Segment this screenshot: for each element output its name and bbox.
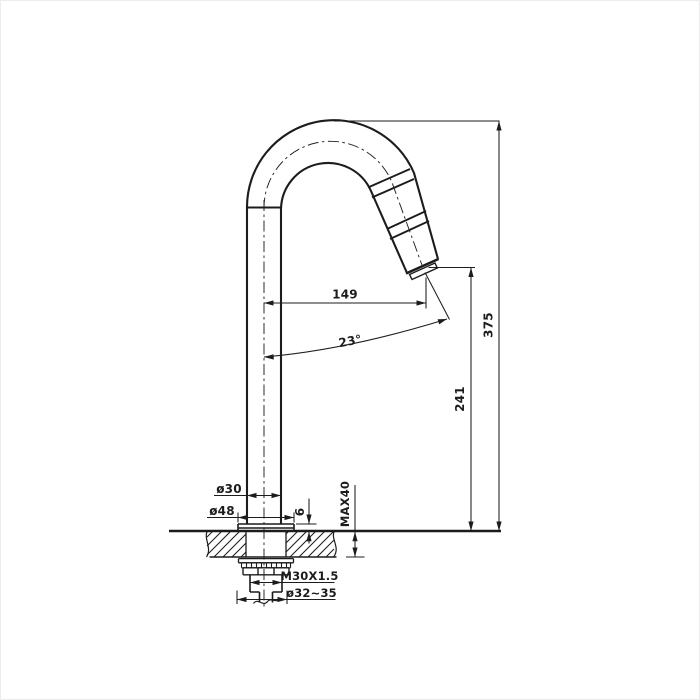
arrow-thread-left: [250, 580, 260, 585]
arrow-base-dia-left: [238, 515, 248, 520]
spout-reach-label: 149: [332, 288, 358, 302]
mount-hole-edges: [246, 532, 286, 557]
arrow-flange-top: [306, 515, 311, 525]
arrow-241-top: [468, 268, 473, 278]
dim-flange-thickness-lines: [296, 499, 317, 544]
technical-drawing-page: 149 23° 375 241 ø30 ø48 6 MAX40 M30X1.5 …: [0, 0, 700, 700]
arrow-deck-top: [352, 532, 357, 542]
arrow-149-left: [264, 300, 274, 305]
arrow-angle-left: [264, 354, 274, 359]
counter-hatch: [207, 531, 334, 557]
spout-angle-label: 23°: [337, 332, 363, 350]
spout-axis-extension: [425, 273, 450, 320]
mount-hole-diameter-label: ø32~35: [286, 586, 337, 600]
arrow-hole-left: [237, 597, 247, 602]
counter-section: [169, 531, 501, 557]
overall-height-label: 375: [482, 312, 496, 338]
spout-centerline: [264, 141, 423, 266]
base-diameter-label: ø48: [209, 504, 235, 518]
serrated-ring: [242, 563, 291, 568]
arrow-angle-right: [438, 319, 447, 324]
thread-spec-label: M30X1.5: [280, 569, 338, 583]
outlet-height-label: 241: [453, 386, 467, 412]
arrow-pipe-dia-right: [272, 493, 282, 498]
tailpiece: [260, 592, 273, 603]
coupling-line-3: [387, 211, 426, 229]
max-deck-thickness-label: MAX40: [338, 481, 352, 527]
arrow-375-bottom: [496, 522, 501, 532]
washer: [239, 559, 294, 563]
arrow-pipe-dia-left: [247, 493, 257, 498]
arrow-149-right: [417, 300, 427, 305]
base-plate-thickness-label: 6: [293, 508, 307, 517]
arrow-375-top: [496, 121, 501, 131]
counter-break-right: [333, 531, 336, 557]
tailpiece-break-squiggle: [254, 600, 280, 604]
pipe-diameter-label: ø30: [216, 482, 242, 496]
arrow-241-bottom: [468, 522, 473, 532]
coupling-line-2: [372, 179, 414, 198]
arrow-deck-bottom: [352, 548, 357, 558]
dimension-labels: 149 23° 375 241 ø30 ø48 6 MAX40 M30X1.5 …: [209, 288, 495, 601]
centerlines: [264, 141, 423, 609]
coupling-line-1: [368, 169, 410, 188]
faucet-technical-drawing: 149 23° 375 241 ø30 ø48 6 MAX40 M30X1.5 …: [1, 1, 700, 700]
